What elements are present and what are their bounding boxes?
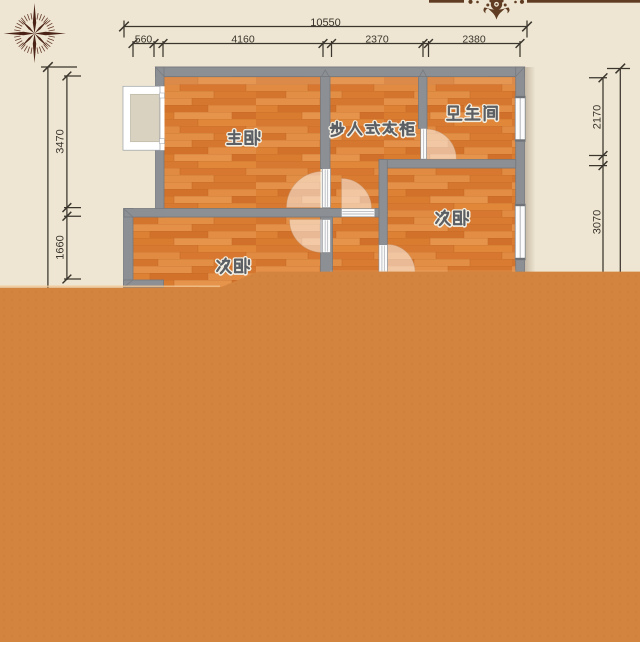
svg-text:4160: 4160 bbox=[231, 33, 255, 45]
svg-text:2380: 2380 bbox=[462, 33, 486, 45]
svg-text:2170: 2170 bbox=[592, 105, 604, 129]
svg-text:3070: 3070 bbox=[592, 210, 604, 234]
svg-text:10550: 10550 bbox=[310, 17, 341, 29]
svg-text:2370: 2370 bbox=[365, 33, 389, 45]
svg-text:560: 560 bbox=[135, 33, 153, 45]
svg-text:3470: 3470 bbox=[55, 129, 67, 153]
svg-text:1660: 1660 bbox=[55, 235, 67, 259]
